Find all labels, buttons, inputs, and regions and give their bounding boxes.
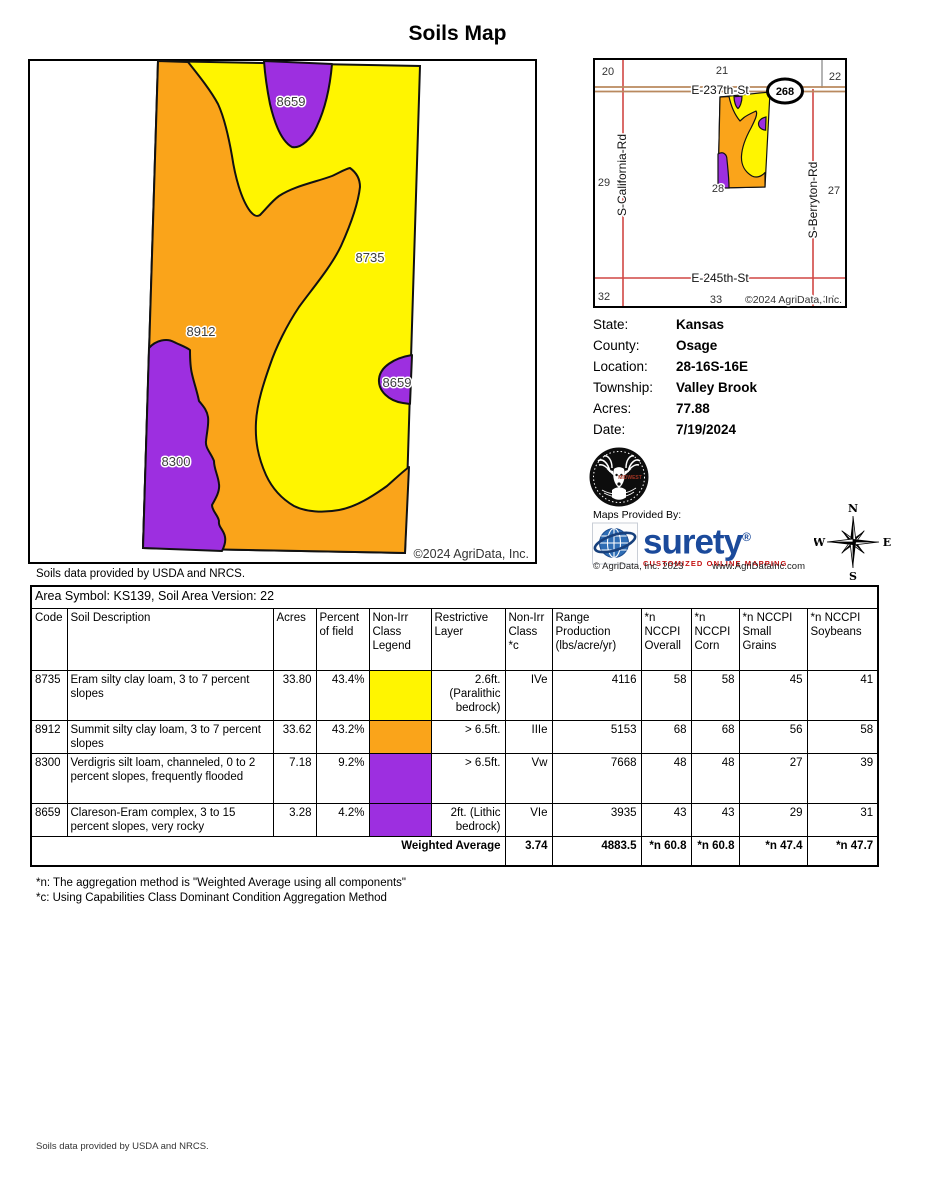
cell-class: Vw — [505, 753, 552, 803]
footnote-c: *c: Using Capabilities Class Dominant Co… — [36, 891, 406, 906]
cell-legend-swatch — [369, 670, 431, 720]
info-label: State: — [593, 317, 676, 338]
info-label: Date: — [593, 422, 676, 443]
info-value: 7/19/2024 — [676, 422, 736, 443]
col-header-acres: Acres — [273, 608, 316, 670]
cell-nccpi-soybeans: 41 — [807, 670, 878, 720]
col-header-nccpi-overall: *n NCCPI Overall — [641, 608, 691, 670]
info-value: Osage — [676, 338, 717, 359]
cell-nccpi-small-grains: 29 — [739, 803, 807, 836]
cell-nccpi-soybeans: 31 — [807, 803, 878, 836]
cell-nccpi-small-grains: 45 — [739, 670, 807, 720]
cell-acres: 33.62 — [273, 720, 316, 753]
table-row: 8912 Summit silty clay loam, 3 to 7 perc… — [31, 720, 878, 753]
info-label: Acres: — [593, 401, 676, 422]
page-title: Soils Map — [0, 22, 915, 46]
deer-logo-text: MIDWEST — [618, 475, 642, 481]
area-symbol-row: Area Symbol: KS139, Soil Area Version: 2… — [31, 586, 878, 608]
midwest-deer-logo: MIDWEST — [588, 446, 650, 508]
cell-description: Summit silty clay loam, 3 to 7 percent s… — [67, 720, 273, 753]
map-label-8300: 8300 — [162, 454, 191, 469]
surety-wordmark: surety® — [643, 522, 787, 558]
info-label: County: — [593, 338, 676, 359]
cell-class: IVe — [505, 670, 552, 720]
highway-badge-number: 268 — [776, 86, 794, 98]
info-value: 28-16S-16E — [676, 359, 748, 380]
cell-nccpi-corn: 43 — [691, 803, 739, 836]
table-row: 8659 Clareson-Eram complex, 3 to 15 perc… — [31, 803, 878, 836]
road-label-237th: E-237th-St — [691, 83, 749, 97]
cell-class: VIe — [505, 803, 552, 836]
table-header-row: Code Soil Description Acres Percent of f… — [31, 608, 878, 670]
section-29: 29 — [598, 177, 610, 189]
col-header-description: Soil Description — [67, 608, 273, 670]
info-row-state: State: Kansas — [593, 317, 757, 338]
cell-nccpi-soybeans: 58 — [807, 720, 878, 753]
section-27: 27 — [828, 185, 840, 197]
road-label-245th: E-245th-St — [691, 271, 749, 285]
map-attribution: ©2024 AgriData, Inc. — [413, 547, 529, 561]
map-label-8659-right: 8659 — [383, 375, 412, 390]
compass-east: E — [883, 536, 891, 549]
compass-west: W — [814, 536, 826, 549]
cell-legend-swatch — [369, 753, 431, 803]
locator-attribution: ©2024 AgriData, Inc. — [745, 294, 842, 306]
weighted-nccpi-corn: *n 60.8 — [691, 836, 739, 866]
cell-restrictive: 2.6ft. (Paralithic bedrock) — [431, 670, 505, 720]
section-28: 28 — [712, 183, 724, 195]
info-value: 77.88 — [676, 401, 710, 422]
info-row-township: Township: Valley Brook — [593, 380, 757, 401]
compass-north: N — [848, 502, 858, 515]
col-header-code: Code — [31, 608, 67, 670]
info-row-county: County: Osage — [593, 338, 757, 359]
surety-website: www.AgriDataInc.com — [712, 561, 805, 572]
maps-provided-by: Maps Provided By: — [593, 509, 681, 521]
cell-nccpi-small-grains: 27 — [739, 753, 807, 803]
section-20: 20 — [602, 66, 614, 78]
col-header-percent: Percent of field — [316, 608, 369, 670]
cell-legend-swatch — [369, 803, 431, 836]
surety-word-text: surety — [643, 523, 742, 562]
cell-production: 3935 — [552, 803, 641, 836]
cell-nccpi-corn: 58 — [691, 670, 739, 720]
cell-production: 4116 — [552, 670, 641, 720]
col-header-nccpi-soybeans: *n NCCPI Soybeans — [807, 608, 878, 670]
road-label-california: S-California-Rd — [615, 134, 629, 216]
cell-nccpi-overall: 68 — [641, 720, 691, 753]
cell-code: 8300 — [31, 753, 67, 803]
footnotes: *n: The aggregation method is "Weighted … — [36, 876, 406, 905]
table-row: 8735 Eram silty clay loam, 3 to 7 percen… — [31, 670, 878, 720]
section-33: 33 — [710, 294, 722, 306]
cell-nccpi-corn: 68 — [691, 720, 739, 753]
info-row-location: Location: 28-16S-16E — [593, 359, 757, 380]
cell-percent: 4.2% — [316, 803, 369, 836]
col-header-restrictive: Restrictive Layer — [431, 608, 505, 670]
surety-globe-icon — [592, 522, 640, 566]
map-label-8659-top: 8659 — [277, 94, 306, 109]
cell-nccpi-overall: 48 — [641, 753, 691, 803]
cell-description: Eram silty clay loam, 3 to 7 percent slo… — [67, 670, 273, 720]
map-source-note: Soils data provided by USDA and NRCS. — [36, 568, 245, 580]
cell-production: 5153 — [552, 720, 641, 753]
cell-description: Verdigris silt loam, channeled, 0 to 2 p… — [67, 753, 273, 803]
col-header-class: Non-Irr Class *c — [505, 608, 552, 670]
area-symbol: Area Symbol: KS139, Soil Area Version: 2… — [31, 586, 878, 608]
info-value: Kansas — [676, 317, 724, 338]
cell-acres: 33.80 — [273, 670, 316, 720]
surety-copyright: © AgriData, Inc. 2023 — [593, 561, 683, 572]
section-22: 22 — [829, 71, 841, 83]
cell-nccpi-overall: 43 — [641, 803, 691, 836]
road-label-berryton: S-Berryton-Rd — [806, 162, 820, 239]
locator-map: 20 21 22 29 28 27 32 33 34 E-237th-St E-… — [593, 58, 847, 308]
cell-code: 8912 — [31, 720, 67, 753]
weighted-production: 4883.5 — [552, 836, 641, 866]
cell-nccpi-overall: 58 — [641, 670, 691, 720]
map-label-8912: 8912 — [187, 324, 216, 339]
surety-footer: © AgriData, Inc. 2023 www.AgriDataInc.co… — [593, 561, 805, 572]
cell-acres: 7.18 — [273, 753, 316, 803]
page-footer-note: Soils data provided by USDA and NRCS. — [36, 1141, 209, 1152]
soil-data-table: Area Symbol: KS139, Soil Area Version: 2… — [30, 585, 879, 867]
parcel-info-panel: State: Kansas County: Osage Location: 28… — [593, 317, 757, 443]
cell-restrictive: > 6.5ft. — [431, 720, 505, 753]
info-row-date: Date: 7/19/2024 — [593, 422, 757, 443]
registered-mark: ® — [742, 530, 750, 544]
cell-nccpi-corn: 48 — [691, 753, 739, 803]
weighted-nccpi-small-grains: *n 47.4 — [739, 836, 807, 866]
cell-percent: 9.2% — [316, 753, 369, 803]
info-value: Valley Brook — [676, 380, 757, 401]
compass-rose-icon: N E S W — [814, 500, 892, 582]
section-21: 21 — [716, 65, 728, 77]
info-label: Township: — [593, 380, 676, 401]
col-header-nccpi-small-grains: *n NCCPI Small Grains — [739, 608, 807, 670]
cell-percent: 43.4% — [316, 670, 369, 720]
weighted-nccpi-overall: *n 60.8 — [641, 836, 691, 866]
weighted-average-row: Weighted Average 3.74 4883.5 *n 60.8 *n … — [31, 836, 878, 866]
col-header-legend: Non-Irr Class Legend — [369, 608, 431, 670]
cell-code: 8735 — [31, 670, 67, 720]
cell-acres: 3.28 — [273, 803, 316, 836]
cell-nccpi-soybeans: 39 — [807, 753, 878, 803]
soils-map: 8659 8735 8912 8659 8300 ©2024 AgriData,… — [28, 59, 537, 564]
cell-nccpi-small-grains: 56 — [739, 720, 807, 753]
cell-percent: 43.2% — [316, 720, 369, 753]
cell-legend-swatch — [369, 720, 431, 753]
col-header-production: Range Production (lbs/acre/yr) — [552, 608, 641, 670]
weighted-average-label: Weighted Average — [31, 836, 505, 866]
compass-south: S — [849, 570, 857, 582]
cell-restrictive: 2ft. (Lithic bedrock) — [431, 803, 505, 836]
cell-class: IIIe — [505, 720, 552, 753]
cell-production: 7668 — [552, 753, 641, 803]
table-row: 8300 Verdigris silt loam, channeled, 0 t… — [31, 753, 878, 803]
section-32: 32 — [598, 291, 610, 303]
weighted-nccpi-soybeans: *n 47.7 — [807, 836, 878, 866]
col-header-nccpi-corn: *n NCCPI Corn — [691, 608, 739, 670]
info-label: Location: — [593, 359, 676, 380]
cell-restrictive: > 6.5ft. — [431, 753, 505, 803]
weighted-class: 3.74 — [505, 836, 552, 866]
footnote-n: *n: The aggregation method is "Weighted … — [36, 876, 406, 891]
map-label-8735: 8735 — [356, 250, 385, 265]
cell-description: Clareson-Eram complex, 3 to 15 percent s… — [67, 803, 273, 836]
info-row-acres: Acres: 77.88 — [593, 401, 757, 422]
cell-code: 8659 — [31, 803, 67, 836]
